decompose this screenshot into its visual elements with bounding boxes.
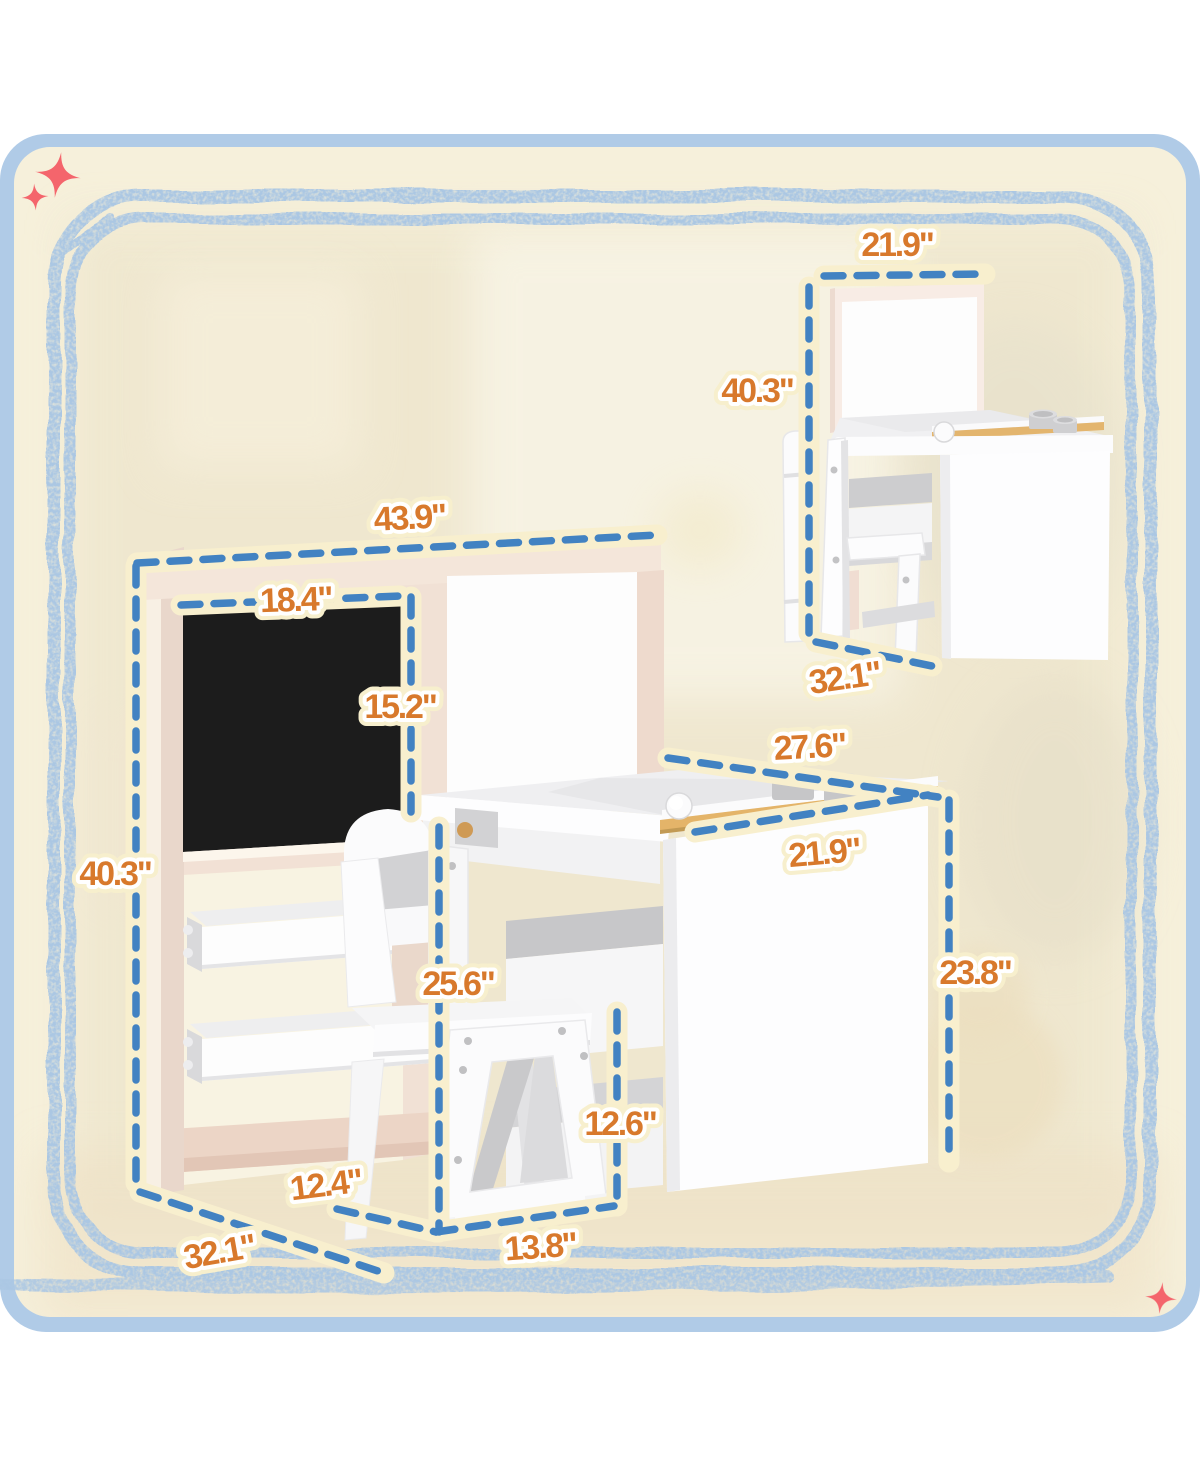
- svg-text:23.8": 23.8": [939, 954, 1010, 992]
- svg-text:43.9": 43.9": [373, 497, 446, 539]
- svg-text:15.2": 15.2": [364, 688, 435, 726]
- svg-text:18.4": 18.4": [259, 580, 332, 620]
- svg-text:21.9": 21.9": [861, 226, 932, 264]
- svg-text:27.6": 27.6": [773, 726, 846, 768]
- svg-text:12.6": 12.6": [584, 1105, 655, 1143]
- svg-text:21.9": 21.9": [787, 831, 861, 875]
- svg-text:40.3": 40.3": [721, 372, 792, 410]
- svg-text:25.6": 25.6": [422, 965, 493, 1003]
- svg-text:40.3": 40.3": [79, 855, 150, 893]
- svg-text:13.8": 13.8": [503, 1226, 577, 1269]
